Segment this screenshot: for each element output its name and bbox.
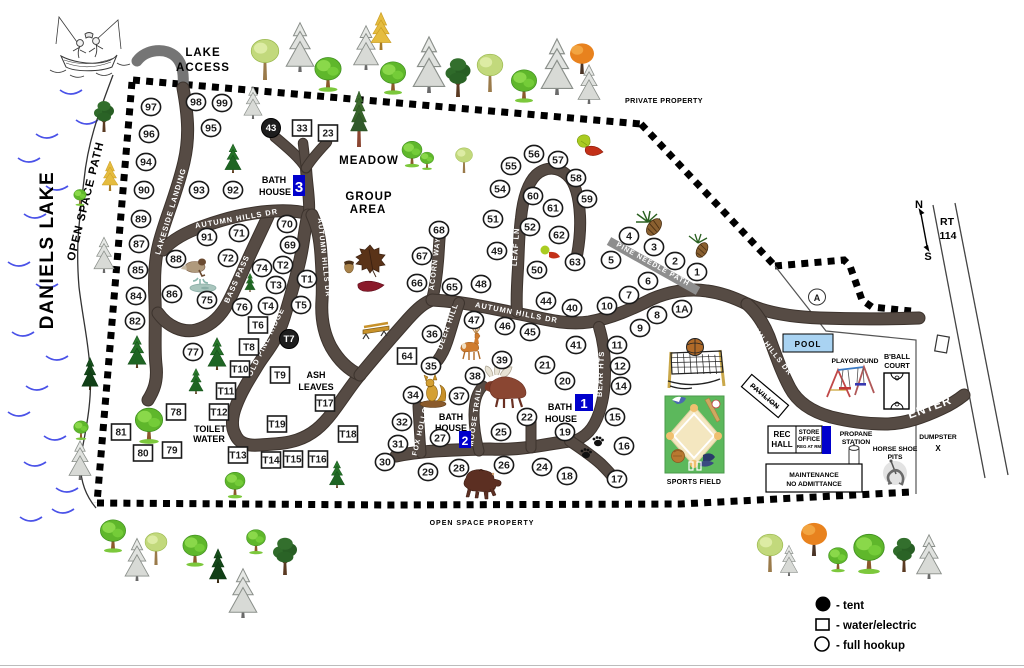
svg-text:LAKE: LAKE [185,47,220,59]
svg-text:17: 17 [611,474,623,486]
svg-text:50: 50 [531,265,543,277]
svg-text:67: 67 [416,251,428,263]
svg-text:MEADOW: MEADOW [339,155,399,167]
svg-text:LEAVES: LEAVES [298,382,333,392]
svg-text:PROPANE: PROPANE [840,431,873,438]
svg-text:B'BALL: B'BALL [884,352,911,361]
svg-text:37: 37 [453,391,465,403]
svg-text:82: 82 [129,316,141,328]
svg-text:- water/electric: - water/electric [836,620,917,632]
svg-text:52: 52 [524,222,536,234]
svg-text:95: 95 [205,123,217,135]
svg-text:BATH: BATH [439,412,463,422]
svg-text:23: 23 [322,129,334,140]
svg-text:40: 40 [566,303,578,315]
svg-text:98: 98 [190,97,202,109]
svg-text:T7: T7 [283,334,294,345]
svg-text:26: 26 [498,460,510,472]
svg-text:30: 30 [379,457,391,469]
svg-text:88: 88 [170,254,182,266]
svg-text:WATER: WATER [193,434,225,444]
svg-text:10: 10 [601,301,613,313]
svg-text:STORE: STORE [799,430,820,436]
svg-text:43: 43 [266,123,277,134]
svg-text:BATH: BATH [548,402,572,412]
svg-text:T5: T5 [295,301,307,312]
svg-text:T6: T6 [252,321,264,332]
svg-text:60: 60 [527,191,539,203]
svg-text:16: 16 [618,441,630,453]
svg-text:35: 35 [425,361,437,373]
svg-text:T11: T11 [218,387,235,398]
svg-text:62: 62 [553,230,565,242]
svg-text:AREA: AREA [350,204,387,216]
svg-text:HOUSE: HOUSE [545,414,577,424]
svg-text:49: 49 [491,246,503,258]
svg-text:X: X [935,444,941,453]
svg-text:20: 20 [559,376,571,388]
svg-text:75: 75 [201,295,213,307]
svg-text:1: 1 [694,267,700,279]
svg-text:94: 94 [140,157,152,169]
svg-text:28: 28 [453,463,465,475]
svg-text:54: 54 [494,184,506,196]
svg-text:29: 29 [422,467,434,479]
svg-text:51: 51 [487,214,499,226]
svg-text:A: A [814,293,821,303]
svg-text:18: 18 [561,471,573,483]
svg-text:86: 86 [166,289,178,301]
svg-text:36: 36 [426,329,438,341]
svg-text:ACCESS: ACCESS [176,62,230,74]
svg-text:46: 46 [499,321,511,333]
svg-text:T19: T19 [268,420,286,431]
svg-text:T3: T3 [270,281,282,292]
svg-text:64: 64 [401,352,413,363]
svg-text:44: 44 [540,296,552,308]
svg-text:59: 59 [581,194,593,206]
svg-text:74: 74 [256,263,268,275]
svg-text:3: 3 [651,242,657,254]
svg-text:POOL: POOL [795,340,822,349]
svg-text:HORSE SHOE: HORSE SHOE [873,446,918,453]
svg-text:31: 31 [392,439,404,451]
svg-text:12: 12 [614,361,626,373]
svg-text:69: 69 [284,240,296,252]
svg-text:T14: T14 [262,456,280,467]
svg-text:47: 47 [468,315,480,327]
svg-text:96: 96 [143,129,155,141]
svg-text:S: S [924,251,931,263]
svg-text:45: 45 [524,327,536,339]
svg-text:55: 55 [505,161,517,173]
svg-text:68: 68 [433,225,445,237]
svg-text:2: 2 [462,434,469,448]
svg-text:87: 87 [133,239,145,251]
svg-text:PITS: PITS [888,454,903,461]
svg-text:4: 4 [626,231,632,243]
svg-text:78: 78 [170,408,182,419]
svg-text:PLAYGROUND: PLAYGROUND [832,358,879,365]
svg-text:T4: T4 [262,302,274,313]
svg-text:21: 21 [539,360,551,372]
svg-text:91: 91 [201,232,213,244]
svg-text:SPORTS FIELD: SPORTS FIELD [667,479,722,486]
svg-text:27: 27 [434,433,446,445]
svg-text:GROUP: GROUP [345,191,392,203]
svg-text:19: 19 [559,427,571,439]
svg-text:1: 1 [580,396,587,411]
svg-text:HOUSE: HOUSE [259,187,291,197]
svg-text:34: 34 [407,390,419,402]
svg-text:NO ADMITTANCE: NO ADMITTANCE [786,481,842,488]
svg-text:PRIVATE PROPERTY: PRIVATE PROPERTY [625,96,703,105]
svg-text:8: 8 [654,310,660,322]
svg-text:DUMPSTER: DUMPSTER [919,434,957,441]
svg-text:80: 80 [137,449,149,460]
svg-text:ASH: ASH [306,370,325,380]
svg-text:33: 33 [296,124,308,135]
svg-text:6: 6 [645,276,651,288]
svg-text:COURT: COURT [884,361,910,370]
svg-text:56: 56 [528,149,540,161]
svg-text:71: 71 [233,228,245,240]
svg-text:32: 32 [396,417,408,429]
svg-text:72: 72 [222,253,234,265]
svg-text:OFFICE: OFFICE [798,437,820,443]
svg-text:5: 5 [608,255,614,267]
svg-text:7: 7 [626,290,632,302]
svg-text:99: 99 [216,98,228,110]
svg-text:T17: T17 [316,399,334,410]
svg-text:63: 63 [569,257,581,269]
svg-text:85: 85 [132,265,144,277]
svg-text:38: 38 [469,371,481,383]
svg-text:39: 39 [496,355,508,367]
svg-text:T10: T10 [231,365,249,376]
svg-text:HALL: HALL [771,440,792,449]
svg-text:14: 14 [615,381,627,393]
svg-text:- tent: - tent [836,600,864,612]
svg-text:76: 76 [236,302,248,314]
svg-text:REC: REC [774,430,791,439]
svg-text:T18: T18 [339,430,357,441]
svg-text:66: 66 [411,278,423,290]
svg-text:15: 15 [609,412,621,424]
svg-text:84: 84 [130,291,142,303]
svg-text:RT: RT [940,216,955,228]
svg-text:OPEN SPACE PROPERTY: OPEN SPACE PROPERTY [430,520,535,527]
svg-text:1A: 1A [675,304,689,316]
svg-text:92: 92 [227,185,239,197]
svg-text:- full hookup: - full hookup [836,640,905,652]
svg-text:DANIELS LAKE: DANIELS LAKE [37,171,58,329]
svg-text:93: 93 [193,185,205,197]
svg-text:STATION: STATION [842,439,871,446]
svg-text:T2: T2 [277,261,289,272]
svg-text:BATH: BATH [262,175,286,185]
svg-text:T13: T13 [229,451,247,462]
svg-text:89: 89 [135,214,147,226]
svg-text:65: 65 [446,282,458,294]
svg-text:T15: T15 [284,455,302,466]
svg-text:79: 79 [166,446,178,457]
svg-text:T8: T8 [243,343,255,354]
svg-text:T12: T12 [210,408,228,419]
svg-text:58: 58 [570,173,582,185]
svg-text:41: 41 [570,340,582,352]
svg-text:REG AT RM: REG AT RM [797,444,821,449]
svg-text:77: 77 [187,347,199,359]
svg-text:9: 9 [637,323,643,335]
svg-text:24: 24 [536,462,548,474]
svg-text:61: 61 [547,203,559,215]
svg-text:90: 90 [138,185,150,197]
svg-text:25: 25 [495,427,507,439]
svg-text:T9: T9 [274,371,286,382]
svg-text:70: 70 [281,219,293,231]
svg-text:TOILET: TOILET [194,424,226,434]
svg-text:97: 97 [145,102,157,114]
svg-text:MAINTENANCE: MAINTENANCE [789,472,839,479]
svg-text:2: 2 [672,256,678,268]
svg-text:57: 57 [552,155,564,167]
svg-text:22: 22 [521,412,533,424]
svg-text:11: 11 [611,340,622,352]
svg-text:81: 81 [115,428,127,439]
svg-text:T1: T1 [301,275,313,286]
svg-text:T16: T16 [309,455,327,466]
svg-text:48: 48 [475,279,487,291]
svg-text:3: 3 [295,179,303,196]
svg-text:114: 114 [940,230,957,242]
